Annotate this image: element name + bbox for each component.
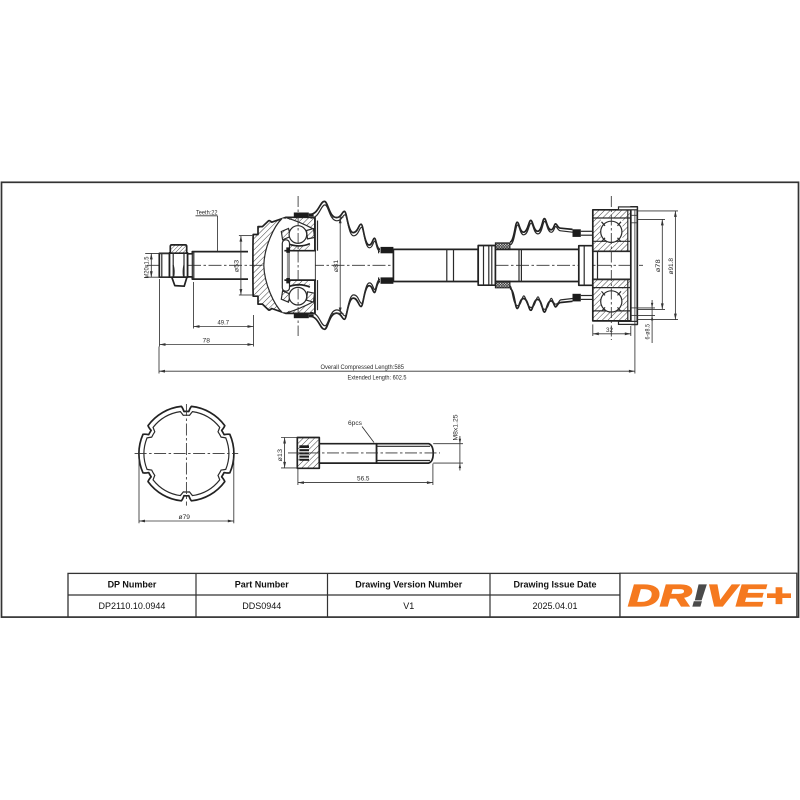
svg-text:ø79: ø79: [179, 514, 191, 521]
svg-text:ø53: ø53: [233, 259, 240, 272]
svg-text:ø91.8: ø91.8: [668, 258, 675, 275]
svg-text:Drawing Issue Date: Drawing Issue Date: [513, 580, 596, 590]
svg-text:6pcs: 6pcs: [348, 420, 363, 427]
svg-text:ø13: ø13: [277, 449, 284, 462]
svg-text:DP Number: DP Number: [108, 580, 157, 590]
svg-text:ø78: ø78: [655, 259, 662, 272]
svg-text:Part Number: Part Number: [235, 580, 290, 590]
svg-text:ø81: ø81: [333, 259, 340, 272]
svg-text:32: 32: [606, 327, 613, 334]
svg-text:Extended Length: 602.5: Extended Length: 602.5: [348, 375, 407, 382]
svg-text:DP2110.10.0944: DP2110.10.0944: [99, 601, 166, 611]
svg-text:78: 78: [203, 337, 211, 344]
svg-text:DDS0944: DDS0944: [242, 601, 281, 611]
svg-text:49.7: 49.7: [218, 319, 230, 326]
svg-text:2025.04.01: 2025.04.01: [532, 601, 577, 611]
svg-text:M8x1.25: M8x1.25: [453, 414, 460, 440]
svg-text:V1: V1: [403, 601, 414, 611]
svg-text:M20x1.5: M20x1.5: [144, 256, 151, 278]
svg-text:Overall Compressed Length:58: Overall Compressed Length:585: [321, 364, 405, 371]
svg-text:Teeth:22: Teeth:22: [196, 209, 218, 216]
svg-text:6-ø8.5: 6-ø8.5: [645, 324, 652, 340]
svg-text:DR!VE+: DR!VE+: [628, 578, 791, 613]
svg-text:Drawing Version Number: Drawing Version Number: [355, 580, 463, 590]
svg-text:56.5: 56.5: [357, 475, 370, 482]
